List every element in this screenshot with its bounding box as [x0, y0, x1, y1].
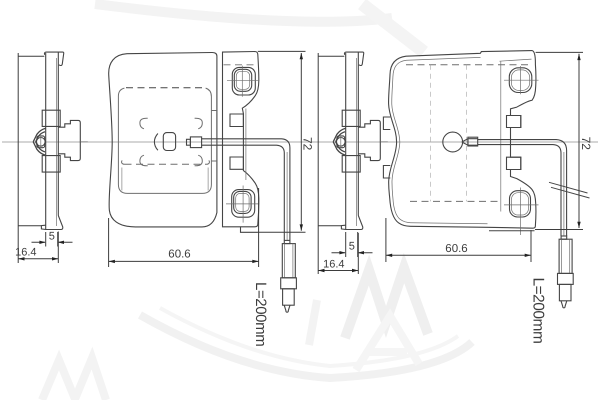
svg-text:5: 5: [349, 241, 355, 253]
svg-text:72: 72: [579, 137, 593, 151]
svg-text:L=200mm: L=200mm: [530, 278, 547, 344]
svg-text:16.4: 16.4: [323, 258, 344, 270]
svg-text:60.6: 60.6: [168, 248, 190, 260]
svg-text:60.6: 60.6: [445, 243, 467, 255]
svg-text:L=200mm: L=200mm: [252, 282, 269, 346]
svg-text:72: 72: [301, 137, 315, 151]
svg-text:5: 5: [49, 230, 55, 242]
svg-text:16.4: 16.4: [15, 247, 36, 259]
